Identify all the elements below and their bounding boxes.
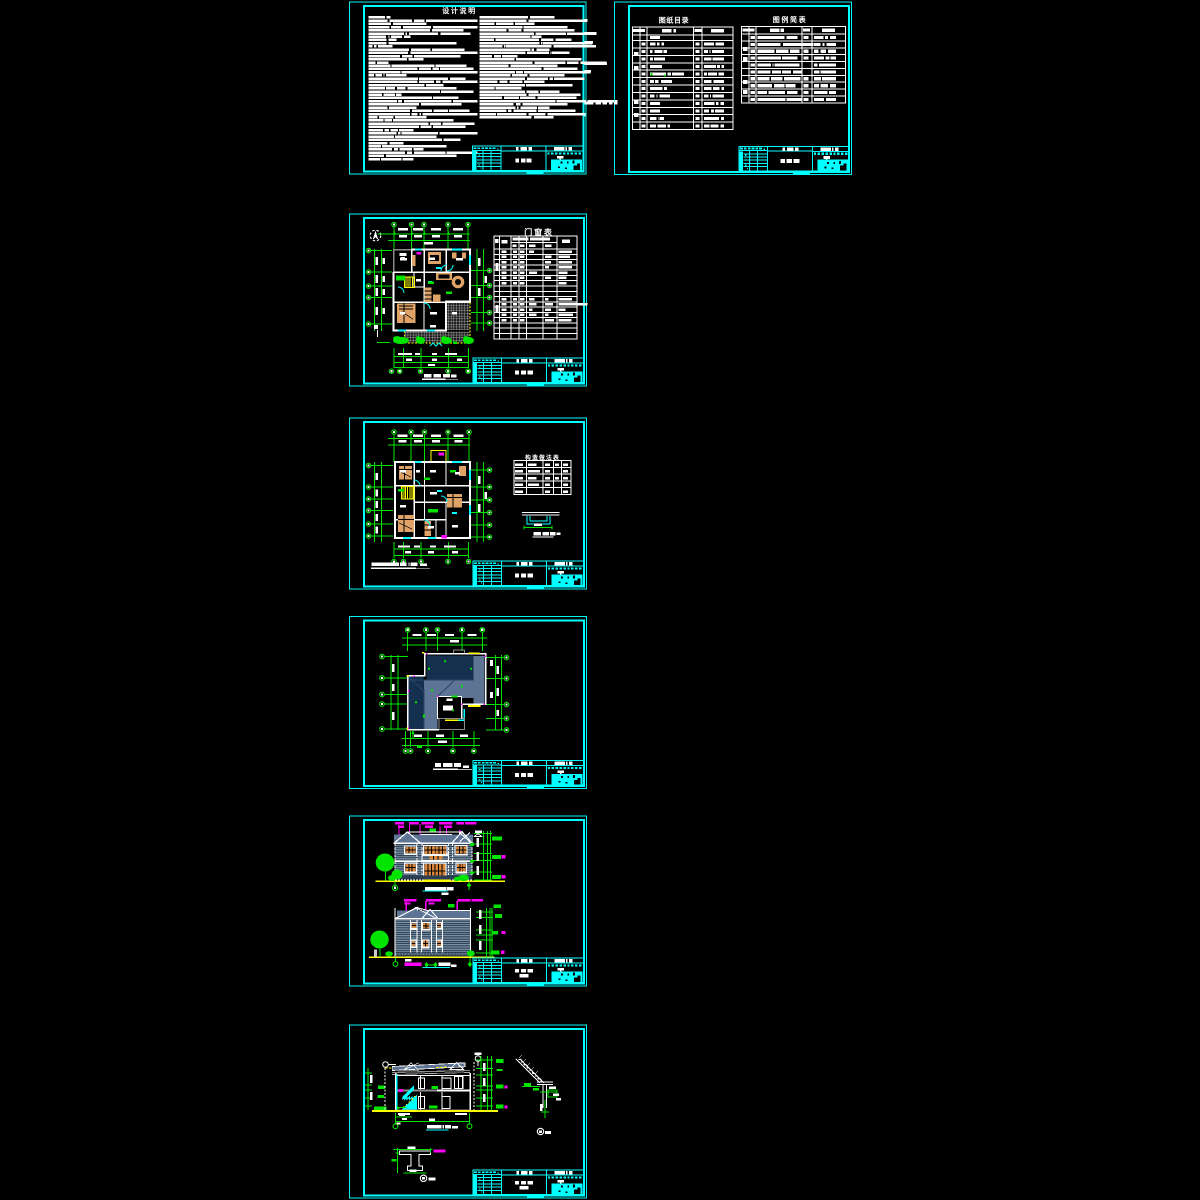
svg-text:门窗表: 门窗表: [524, 227, 553, 237]
svg-text:图纸目录: 图纸目录: [659, 16, 689, 25]
svg-text:图例简表: 图例简表: [773, 15, 807, 24]
svg-text:构造做法表: 构造做法表: [525, 453, 560, 461]
svg-text:设计说明: 设计说明: [442, 6, 476, 15]
